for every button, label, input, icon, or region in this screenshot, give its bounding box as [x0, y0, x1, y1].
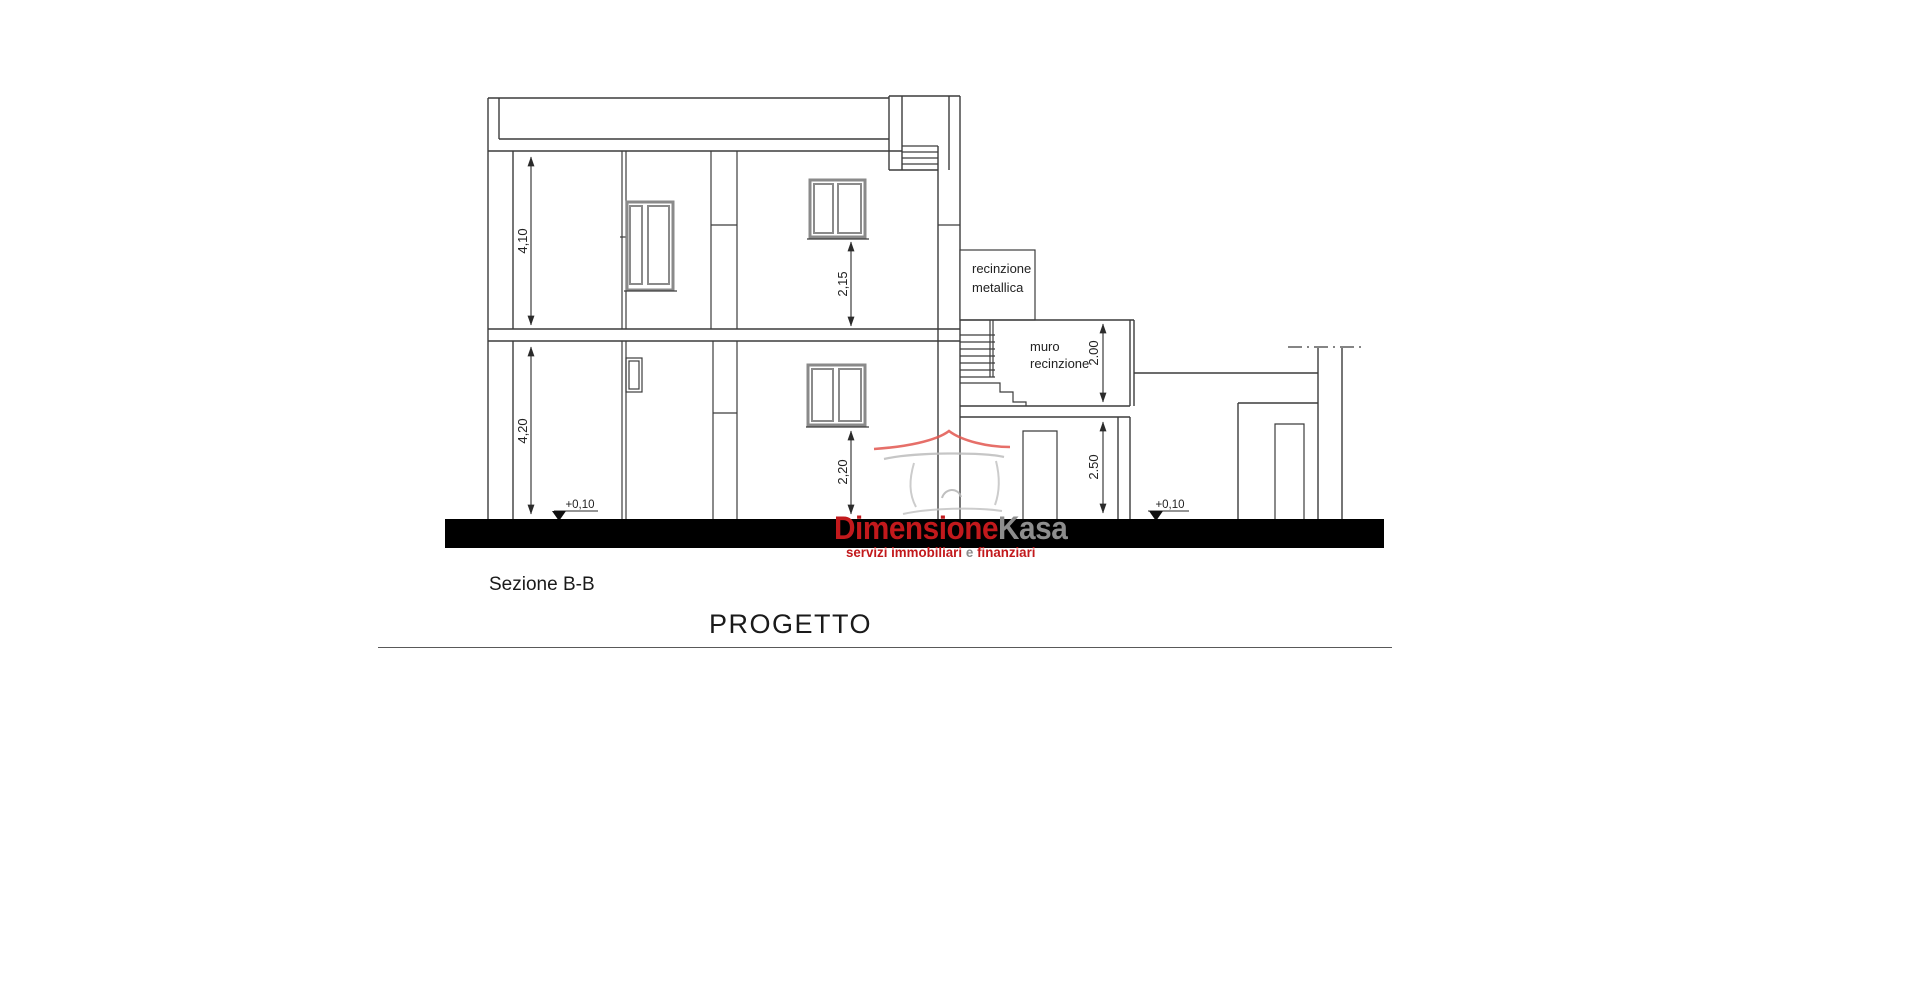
watermark-brand-secondary: Kasa [998, 510, 1067, 546]
watermark-tagline-secondary: finanziari [977, 544, 1035, 560]
upper-middle-window [807, 180, 869, 239]
right-annex [1134, 347, 1366, 519]
metal-fence-label-box: recinzione metallica [960, 250, 1035, 320]
section-caption: Sezione B-B [489, 574, 595, 596]
watermark-brand-primary: Dimensione [834, 510, 998, 546]
dim-fence-wall-height: 2.00 [1086, 340, 1101, 365]
dim-upper-floor-height: 4,10 [515, 228, 530, 253]
annex-door [1275, 424, 1304, 519]
metal-fence-label-line2: metallica [972, 280, 1024, 295]
watermark-tagline: servizi immobiliariefinanziari [846, 545, 1039, 559]
level-value-left: +0,10 [565, 499, 594, 511]
dim-ground-floor-height: 4,20 [515, 418, 530, 443]
roof-stair-tower [889, 96, 960, 170]
watermark-house-logo [874, 431, 1010, 514]
watermark-tagline-primary: servizi immobiliari [846, 544, 962, 560]
dim-ground-window-height: 2,20 [835, 459, 850, 484]
dim-upper-window-height: 2,15 [835, 271, 850, 296]
dim-annex-height: 2.50 [1086, 454, 1101, 479]
fence-wall-label-line2: recinzione [1030, 356, 1089, 371]
middle-section [960, 406, 1130, 519]
logo-roof-curve [874, 431, 1010, 449]
upper-left-window [624, 202, 677, 291]
ground-floor-partitions [622, 341, 737, 519]
level-marker-right: +0,10 [1148, 499, 1189, 521]
level-value-right: +0,10 [1155, 499, 1184, 511]
ground-middle-window [806, 365, 869, 427]
architectural-section-sheet: recinzione metallica muro recinzione [0, 0, 1914, 1000]
watermark-brand: DimensioneKasa [834, 512, 1067, 544]
watermark-tagline-conjunction: e [966, 544, 973, 560]
metal-fence-label-line1: recinzione [972, 261, 1031, 276]
sheet-title: PROGETTO [709, 609, 872, 640]
level-marker-left: +0,10 [552, 499, 598, 521]
fence-wall-label-line1: muro [1030, 339, 1060, 354]
title-underline-rule [378, 647, 1392, 648]
middle-section-door [1023, 431, 1057, 519]
section-drawing: recinzione metallica muro recinzione [0, 0, 1914, 1000]
